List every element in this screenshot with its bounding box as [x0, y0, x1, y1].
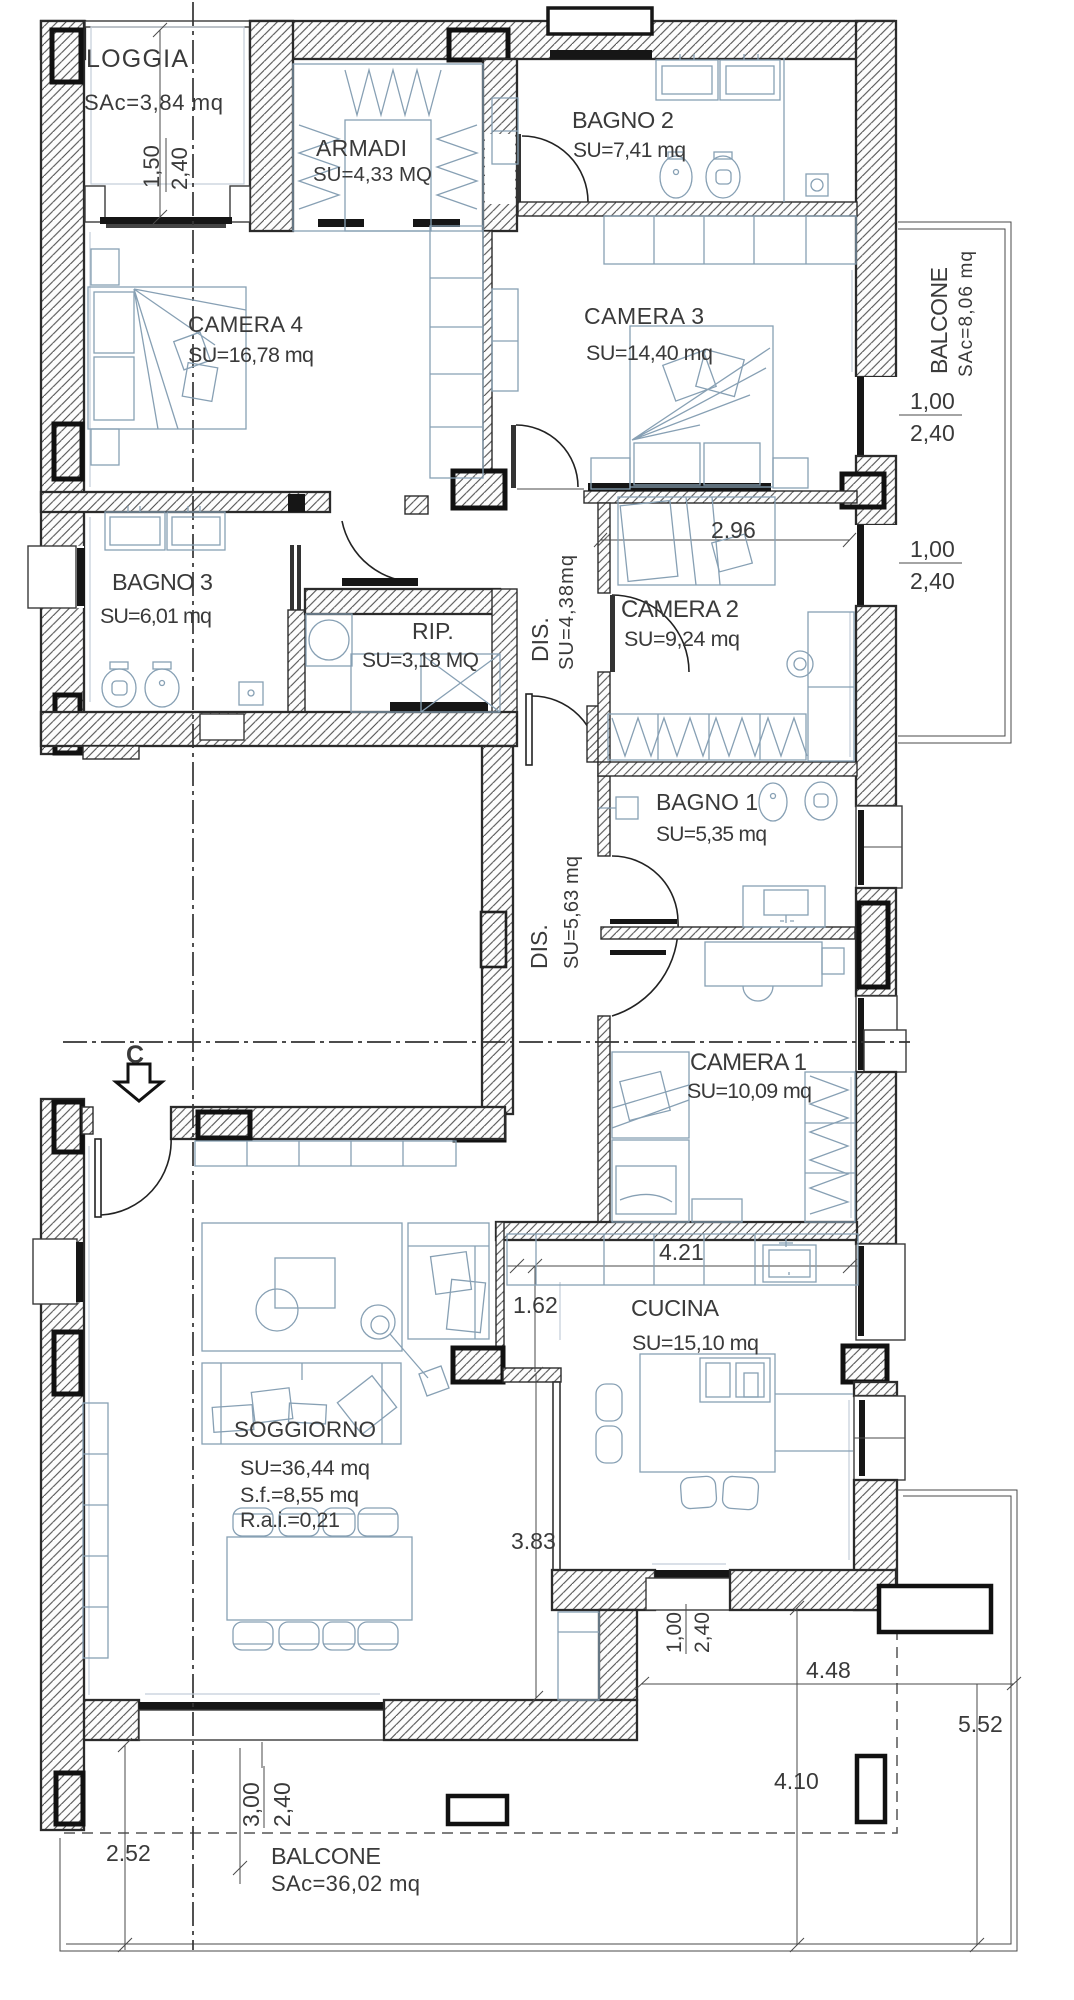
svg-text:SU=16,78 mq: SU=16,78 mq [188, 343, 314, 367]
svg-text:5.52: 5.52 [958, 1711, 1003, 1737]
svg-text:RIP.: RIP. [412, 618, 454, 644]
svg-text:3,00: 3,00 [238, 1782, 264, 1827]
svg-text:SU=4,33 MQ: SU=4,33 MQ [313, 163, 432, 186]
svg-text:CAMERA 1: CAMERA 1 [690, 1049, 807, 1076]
svg-text:SU=7,41 mq: SU=7,41 mq [573, 139, 686, 162]
svg-text:SU=5,63 mq: SU=5,63 mq [561, 856, 583, 969]
svg-text:S.f.=8,55 mq: S.f.=8,55 mq [240, 1483, 359, 1507]
svg-text:1,00: 1,00 [910, 388, 955, 414]
svg-text:SU=3,18 MQ: SU=3,18 MQ [362, 649, 479, 672]
svg-text:4.48: 4.48 [806, 1657, 851, 1683]
svg-text:SAc=36,02 mq: SAc=36,02 mq [271, 1871, 420, 1896]
svg-text:2,40: 2,40 [691, 1612, 714, 1653]
svg-text:DIS.: DIS. [527, 617, 553, 662]
svg-text:1,00: 1,00 [910, 536, 955, 562]
svg-text:SU=5,35 mq: SU=5,35 mq [656, 823, 767, 846]
svg-text:CAMERA 4: CAMERA 4 [188, 312, 303, 337]
svg-text:2.96: 2.96 [711, 517, 756, 543]
svg-text:ARMADI: ARMADI [316, 135, 407, 161]
svg-text:SU=6,01 mq: SU=6,01 mq [100, 604, 212, 628]
svg-text:R.a.i.=0,21: R.a.i.=0,21 [240, 1508, 340, 1532]
svg-text:2,40: 2,40 [167, 147, 192, 190]
svg-text:CUCINA: CUCINA [631, 1295, 719, 1321]
svg-text:SU=14,40 mq: SU=14,40 mq [586, 341, 713, 365]
svg-text:SOGGIORNO: SOGGIORNO [234, 1417, 376, 1442]
svg-text:2.52: 2.52 [106, 1840, 151, 1866]
svg-text:DIS.: DIS. [526, 924, 552, 969]
svg-text:SU=4,38mq: SU=4,38mq [556, 555, 578, 670]
svg-text:CAMERA 2: CAMERA 2 [621, 596, 739, 623]
svg-text:BAGNO 1: BAGNO 1 [656, 789, 758, 815]
svg-text:2,40: 2,40 [910, 420, 955, 446]
svg-text:3.83: 3.83 [511, 1528, 556, 1554]
svg-text:SU=10,09 mq: SU=10,09 mq [687, 1079, 812, 1103]
svg-text:2,40: 2,40 [269, 1782, 295, 1827]
svg-text:BALCONE: BALCONE [926, 267, 952, 374]
svg-text:4.10: 4.10 [774, 1768, 819, 1794]
svg-text:SU=36,44 mq: SU=36,44 mq [240, 1456, 370, 1480]
svg-text:4.21: 4.21 [659, 1239, 704, 1265]
svg-text:1.62: 1.62 [513, 1292, 558, 1318]
svg-text:LOGGIA: LOGGIA [86, 45, 188, 73]
svg-text:1,50: 1,50 [139, 145, 164, 188]
svg-text:2,40: 2,40 [910, 568, 955, 594]
svg-text:1,00: 1,00 [663, 1612, 686, 1653]
svg-text:SAc=8,06 mq: SAc=8,06 mq [956, 251, 977, 377]
svg-text:C: C [126, 1041, 144, 1069]
svg-text:BALCONE: BALCONE [271, 1843, 381, 1869]
svg-text:SU=15,10 mq: SU=15,10 mq [632, 1331, 759, 1355]
svg-text:SU=9,24 mq: SU=9,24 mq [624, 627, 740, 651]
svg-text:BAGNO 3: BAGNO 3 [112, 569, 213, 595]
svg-text:BAGNO 2: BAGNO 2 [572, 107, 674, 133]
svg-text:CAMERA 3: CAMERA 3 [584, 303, 704, 329]
svg-text:SAc=3,84 mq: SAc=3,84 mq [84, 90, 223, 115]
